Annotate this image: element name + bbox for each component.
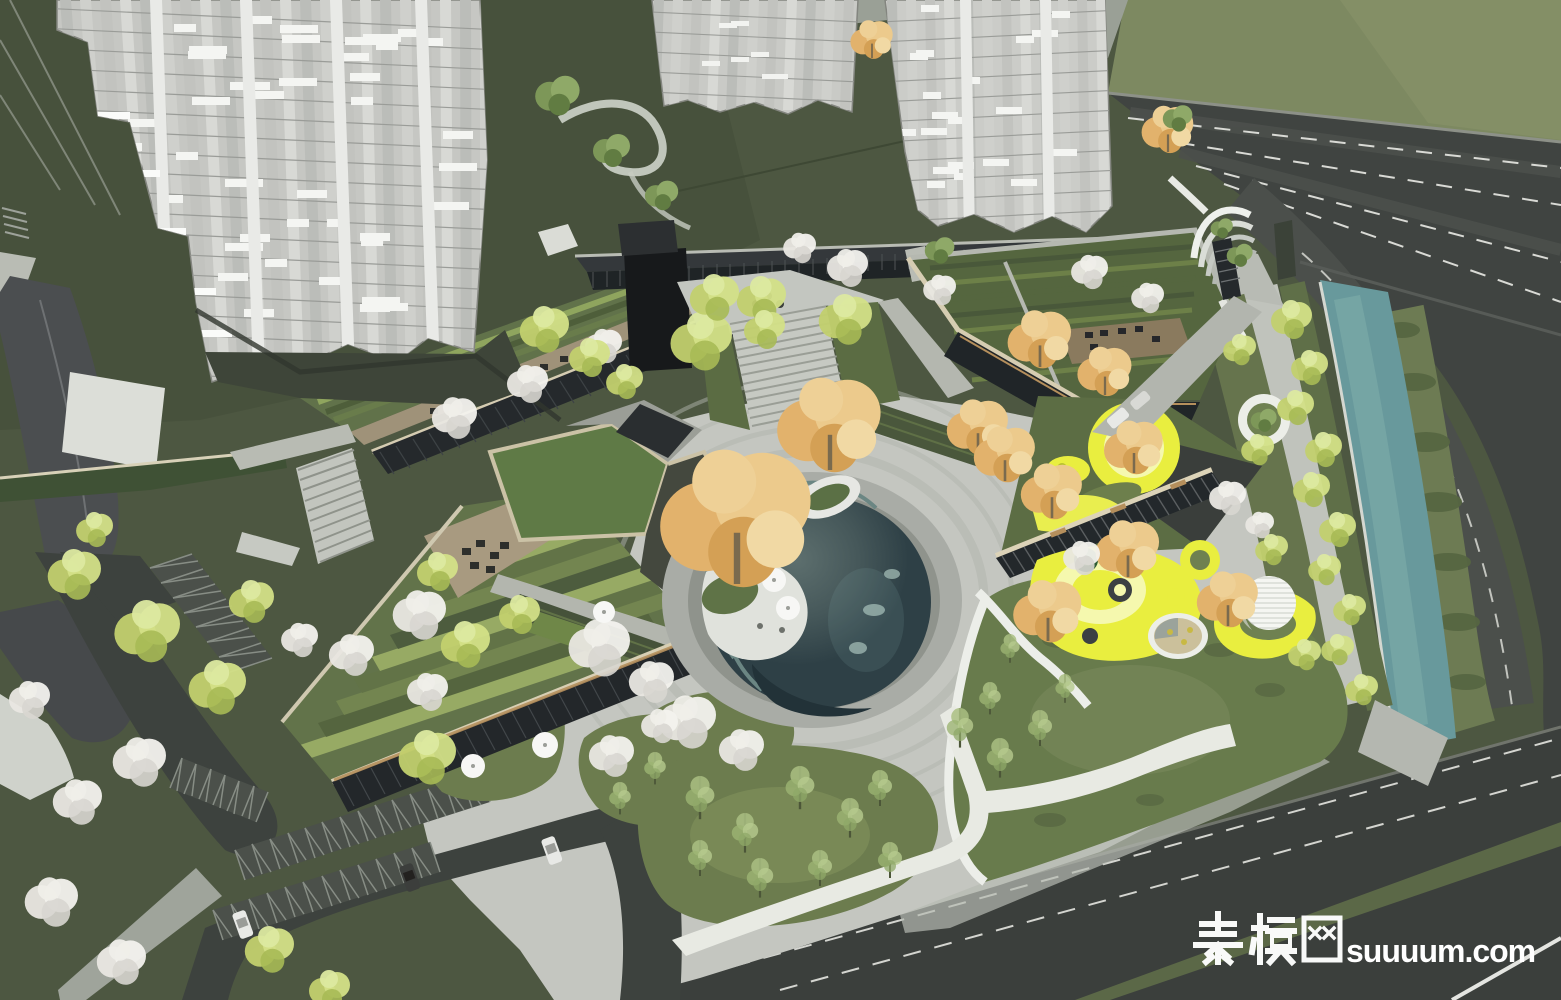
svg-text:suuuum.com: suuuum.com	[1346, 933, 1535, 969]
